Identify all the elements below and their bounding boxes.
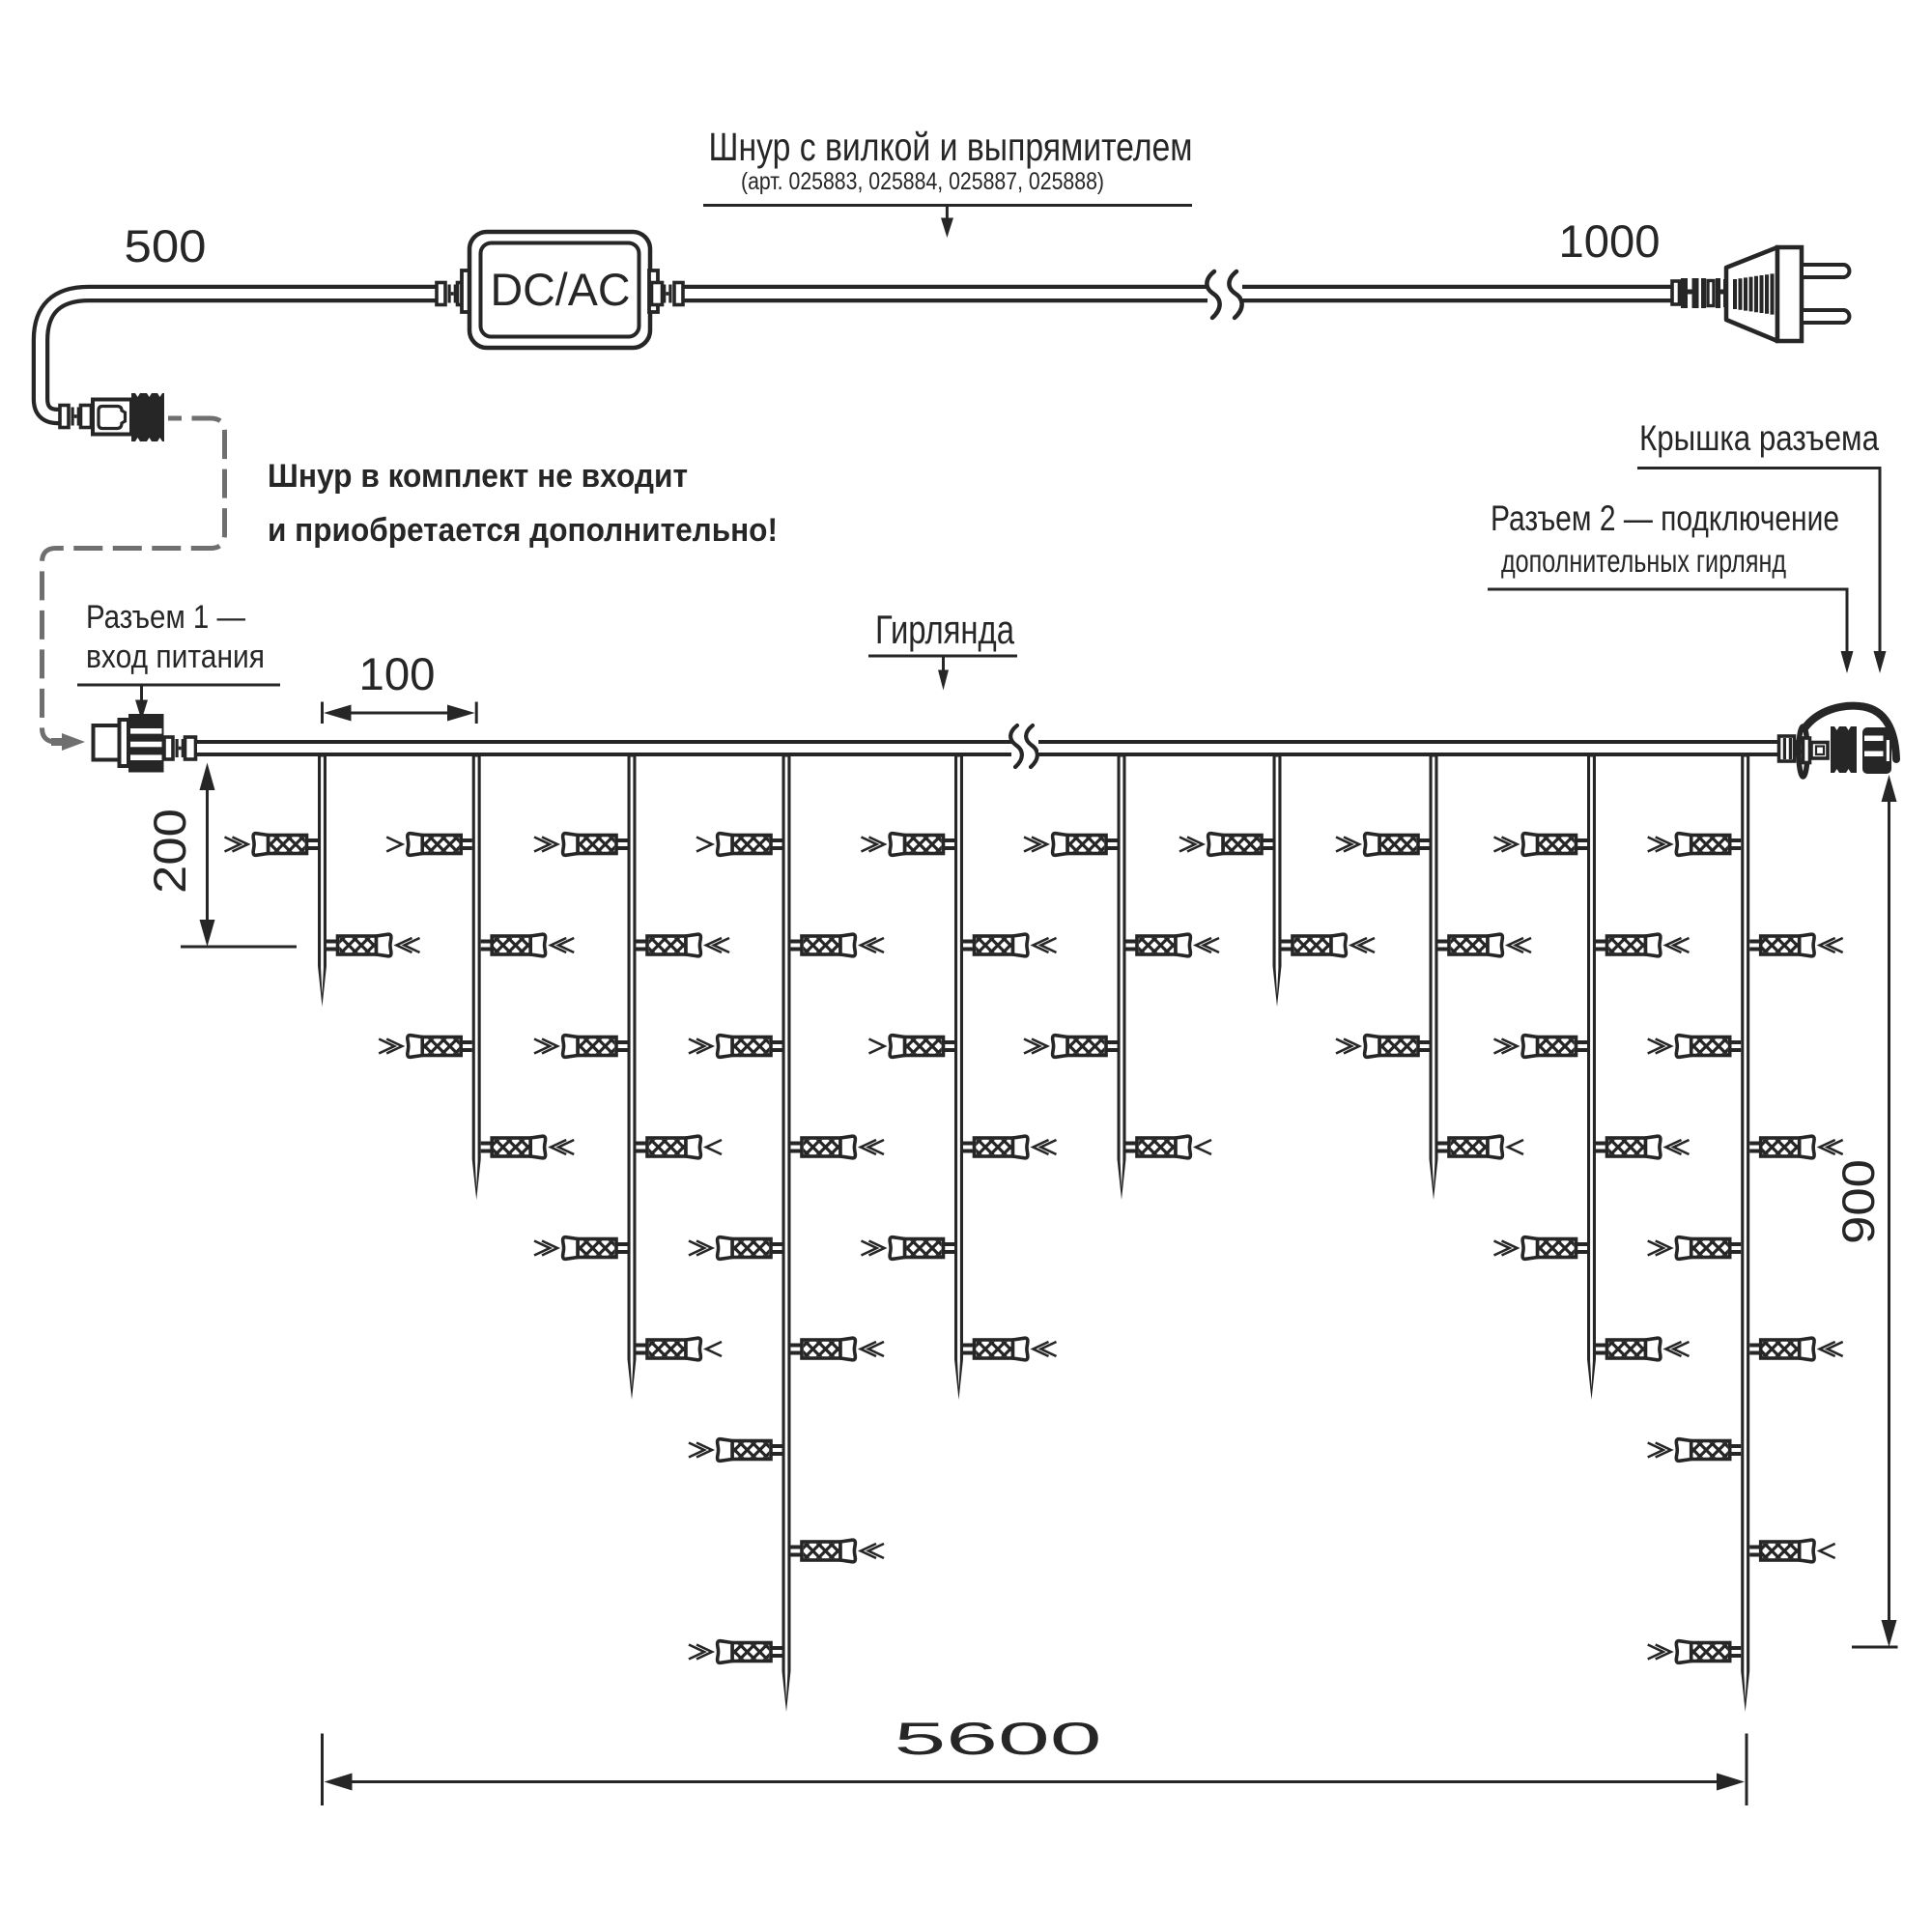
svg-text:500: 500 — [125, 220, 207, 271]
svg-text:вход питания: вход питания — [86, 639, 265, 675]
svg-text:Шнур в комплект не входит: Шнур в комплект не входит — [268, 458, 688, 495]
svg-text:900: 900 — [1833, 1159, 1884, 1244]
svg-text:Гирлянда: Гирлянда — [875, 607, 1015, 652]
svg-text:Разъем 2 — подключение: Разъем 2 — подключение — [1491, 498, 1839, 538]
svg-text:200: 200 — [144, 809, 195, 894]
svg-text:100: 100 — [359, 648, 436, 699]
svg-text:DC/AC: DC/AC — [491, 264, 631, 315]
svg-text:1000: 1000 — [1559, 215, 1661, 267]
svg-text:Крышка разъема: Крышка разъема — [1639, 418, 1879, 458]
svg-text:5600: 5600 — [895, 1713, 1102, 1764]
svg-text:дополнительных гирлянд: дополнительных гирлянд — [1501, 543, 1786, 579]
svg-text:Разъем 1 —: Разъем 1 — — [86, 599, 245, 636]
svg-text:Шнур с вилкой и выпрямителем: Шнур с вилкой и выпрямителем — [709, 125, 1193, 169]
svg-text:и приобретается дополнительно!: и приобретается дополнительно! — [268, 512, 778, 549]
svg-text:(арт. 025883, 025884, 025887,: (арт. 025883, 025884, 025887, 025888) — [741, 168, 1104, 195]
